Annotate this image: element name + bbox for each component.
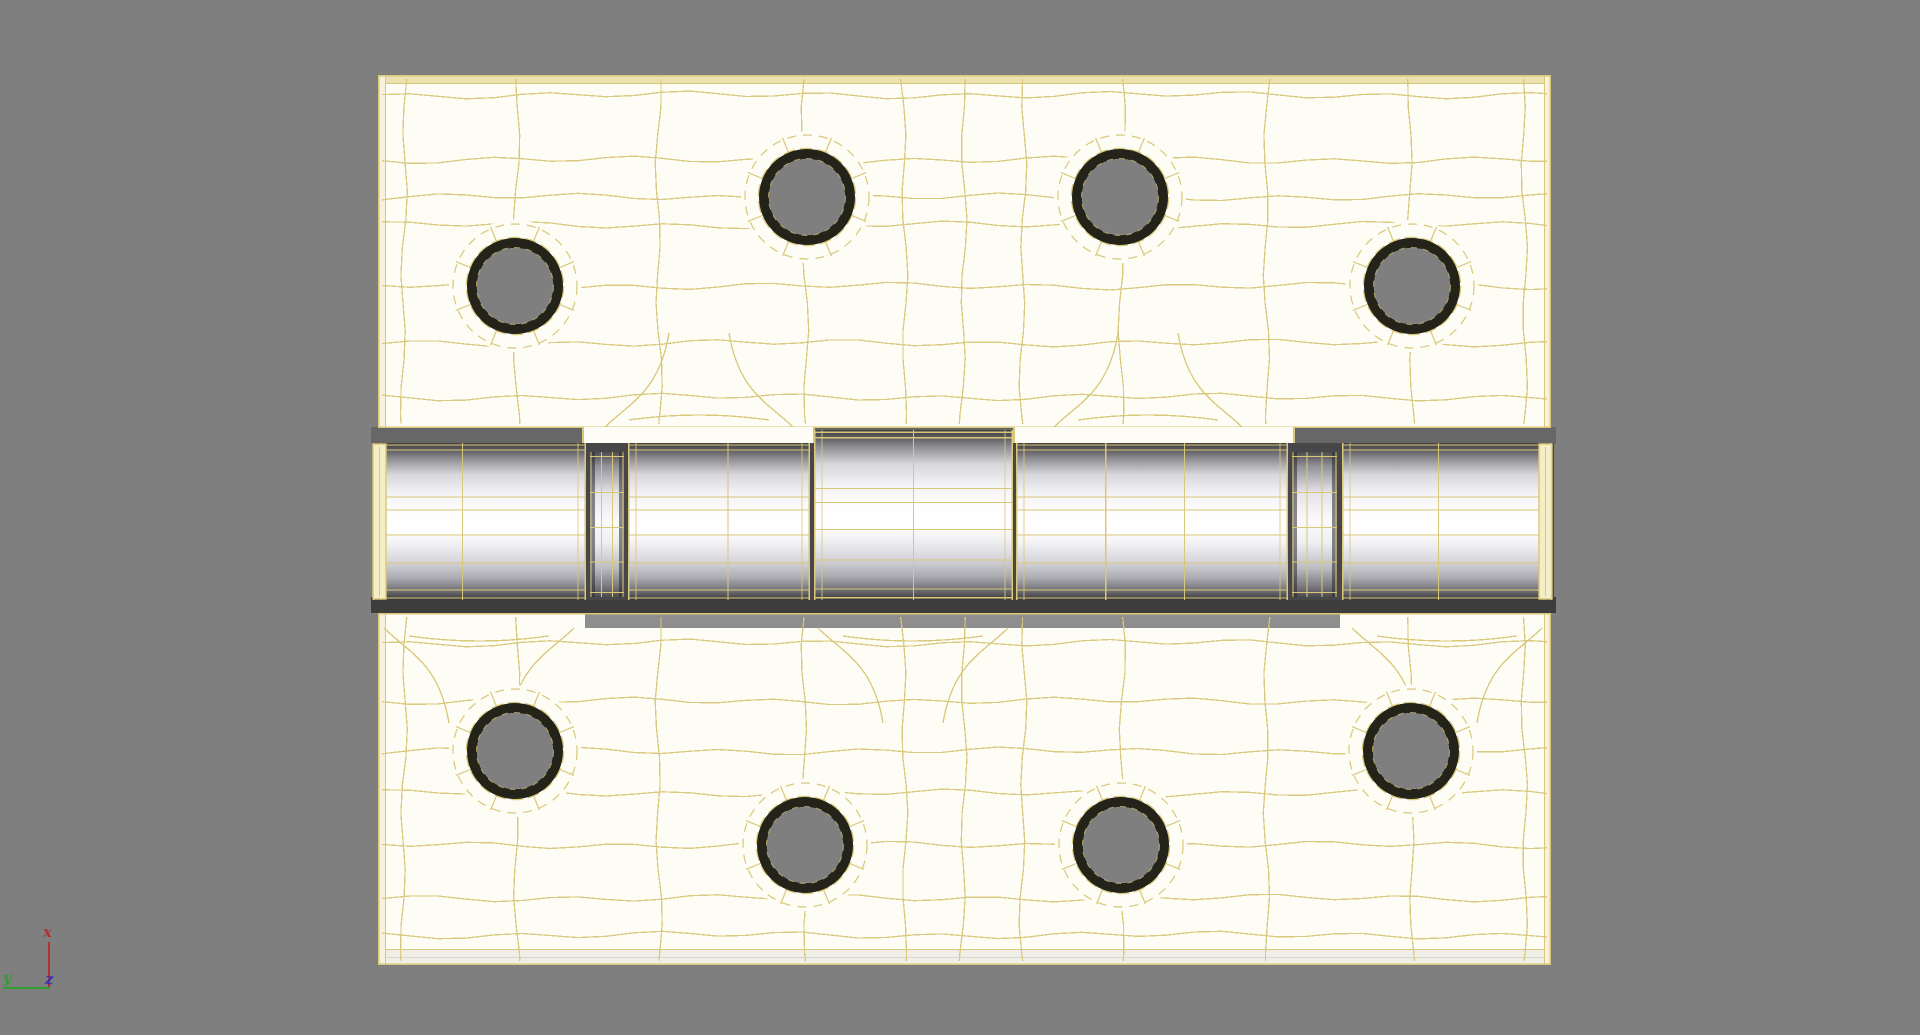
hinge-bottom-leaf[interactable]	[378, 613, 1551, 965]
screw-hole[interactable]	[1346, 220, 1478, 352]
screw-hole[interactable]	[1055, 779, 1187, 911]
screw-hole[interactable]	[739, 779, 871, 911]
hinge-knuckle[interactable]	[373, 443, 586, 600]
axis-x-label: x	[42, 923, 53, 941]
axis-z-label: z	[44, 970, 54, 988]
hinge-knuckle[interactable]	[1342, 443, 1552, 600]
screw-hole[interactable]	[1054, 131, 1186, 263]
hinge-knuckle[interactable]	[814, 430, 1013, 600]
hinge-pin-segment[interactable]	[1292, 452, 1337, 597]
axis-y-label: y	[2, 969, 13, 987]
screw-hole[interactable]	[741, 131, 873, 263]
viewport-3d[interactable]: x y z	[0, 0, 1920, 1035]
screw-hole[interactable]	[449, 220, 581, 352]
axis-gizmo: x y z	[0, 912, 90, 1012]
hinge-barrel[interactable]	[371, 428, 1556, 612]
screw-hole[interactable]	[1345, 685, 1477, 817]
hinge-knuckle[interactable]	[628, 443, 810, 600]
hinge-knuckle[interactable]	[1016, 443, 1288, 600]
hinge-pin-segment[interactable]	[590, 452, 624, 597]
screw-hole[interactable]	[449, 685, 581, 817]
hinge-top-leaf[interactable]	[378, 75, 1551, 428]
